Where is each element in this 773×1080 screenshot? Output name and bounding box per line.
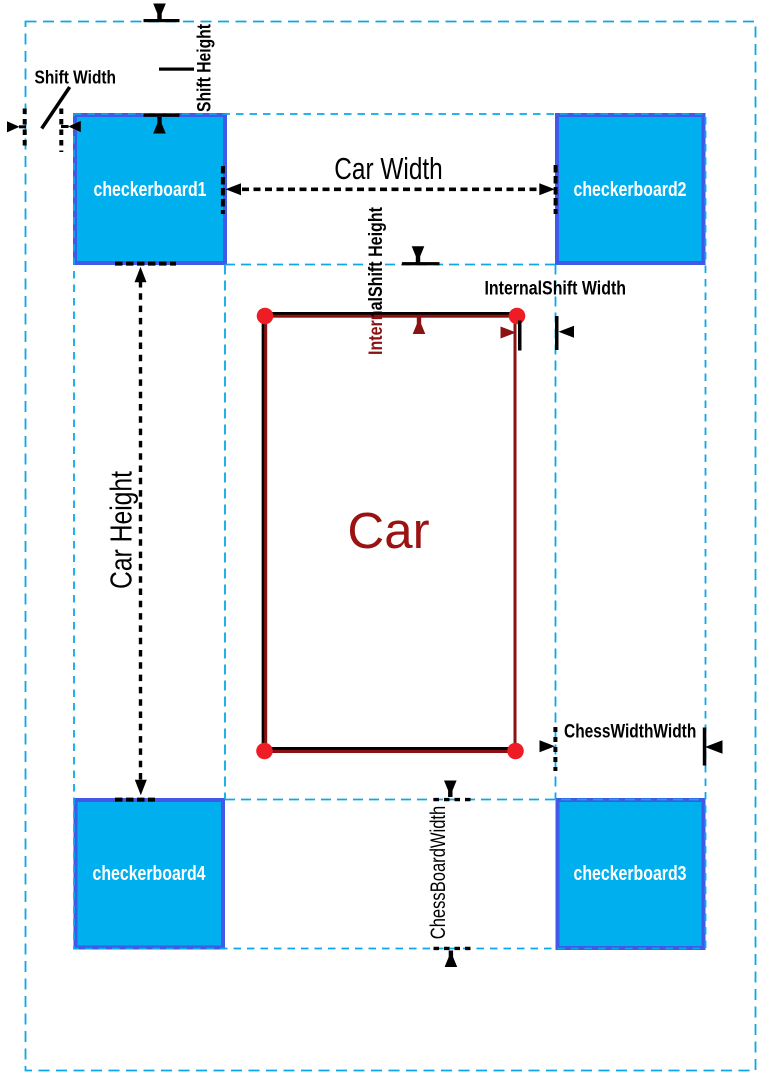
svg-text:checkerboard1: checkerboard1 <box>94 179 207 201</box>
svg-text:checkerboard4: checkerboard4 <box>93 863 207 885</box>
svg-text:checkerboard3: checkerboard3 <box>574 863 687 885</box>
svg-text:Car: Car <box>347 502 429 559</box>
svg-text:checkerboard2: checkerboard2 <box>574 179 687 201</box>
svg-text:ChessBoardWidth: ChessBoardWidth <box>427 806 450 940</box>
svg-text:Car Width: Car Width <box>334 151 443 186</box>
svg-text:Car Height: Car Height <box>104 471 139 589</box>
svg-text:Shift Height: Shift Height <box>195 23 216 112</box>
svg-text:Shift Width: Shift Width <box>35 68 117 88</box>
svg-text:InternalShift Width: InternalShift Width <box>485 279 627 300</box>
svg-text:ChessWidthWidth: ChessWidthWidth <box>564 721 696 742</box>
